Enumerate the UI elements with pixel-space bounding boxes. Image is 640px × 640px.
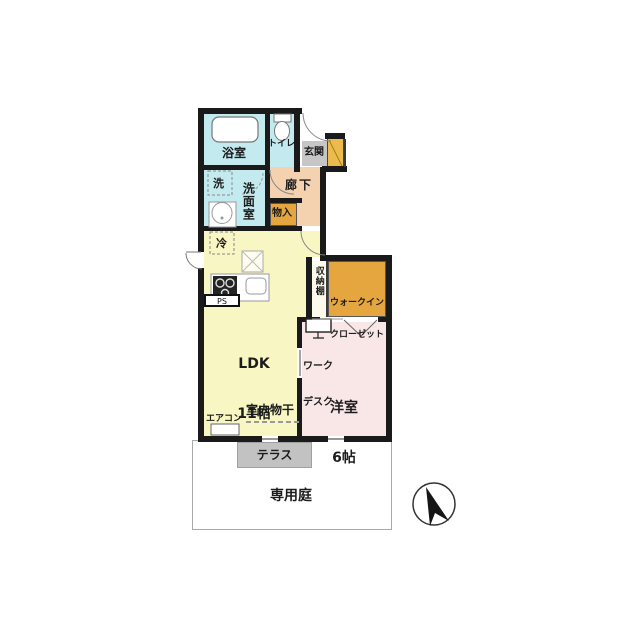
label-storage: 物入 <box>272 208 292 220</box>
label-hallway: 廊下 <box>285 178 313 192</box>
label-western-room: 洋室 6帖 <box>318 366 370 500</box>
label-western-name: 洋室 <box>318 400 370 417</box>
label-air-conditioner: エアコン <box>206 414 242 425</box>
label-ldk-name: LDK <box>222 356 286 373</box>
wall <box>265 198 302 203</box>
label-washroom: 洗面室 <box>241 182 255 221</box>
label-terrace: テラス <box>237 448 312 462</box>
label-indoor-drying: 室内物干 <box>246 403 294 417</box>
front-door-panel <box>327 138 344 168</box>
label-bathroom: 浴室 <box>222 146 246 160</box>
label-laundry: 洗 <box>213 177 224 190</box>
wall <box>265 170 270 226</box>
label-wic-line2: クローゼット <box>328 330 386 341</box>
wall-line <box>344 139 346 167</box>
wall <box>320 167 326 259</box>
floorplan-canvas: PS 浴室 トイレ 玄関 廊下 洗 洗面室 物入 冷 LDK 11帖 <box>0 0 640 640</box>
wall <box>198 108 204 442</box>
room-ldk-mid <box>204 255 306 317</box>
label-entrance: 玄関 <box>304 147 324 159</box>
fixtures-layer: PS <box>0 0 640 640</box>
wall <box>198 165 270 170</box>
label-toilet: トイレ <box>268 139 295 150</box>
wall <box>320 255 392 261</box>
door-opening <box>198 252 204 268</box>
wall <box>204 226 302 231</box>
wall <box>297 378 302 442</box>
label-shelf: 収納棚 <box>313 266 324 296</box>
label-western-size: 6帖 <box>318 450 370 467</box>
label-ldk: LDK 11帖 <box>222 322 286 456</box>
label-fridge: 冷 <box>216 237 227 250</box>
label-walk-in-closet: ウォークイン クローゼット <box>328 276 386 362</box>
wall <box>325 133 345 139</box>
label-private-garden: 専用庭 <box>241 488 341 505</box>
wall <box>386 255 392 442</box>
label-wic-line1: ウォークイン <box>328 298 386 309</box>
wall <box>198 108 302 114</box>
wall <box>306 257 312 317</box>
wall <box>297 317 302 348</box>
north-arrow-icon <box>413 483 455 526</box>
